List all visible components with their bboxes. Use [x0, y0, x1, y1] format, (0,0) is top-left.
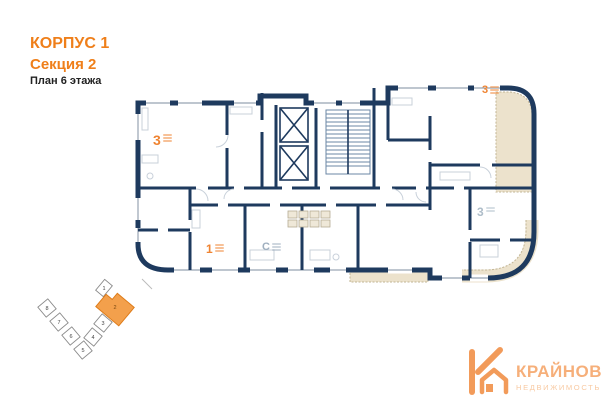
- building-minimap: 1 2 3 4 5 6 7 8: [25, 276, 153, 398]
- minimap-section-number: 1: [102, 286, 105, 292]
- area-figures: [486, 207, 495, 212]
- area-figures: [490, 86, 499, 94]
- apartment-type: 3: [482, 85, 488, 96]
- minimap-section-number: 4: [91, 335, 94, 341]
- logo-name: КРАЙНОВ: [516, 362, 602, 381]
- minimap-section-number: 8: [45, 306, 48, 312]
- area-figures: [272, 243, 281, 251]
- company-logo: КРАЙНОВ НЕДВИЖИМОСТЬ: [458, 344, 603, 400]
- minimap-section-number: 7: [57, 320, 60, 326]
- minimap-road-line: [142, 279, 152, 289]
- section-title: Секция 2: [30, 55, 109, 75]
- floor-plan: 3 3 1 С 3: [130, 80, 545, 290]
- minimap-section-number: 6: [69, 334, 72, 340]
- area-figures: [215, 244, 224, 252]
- plan-header: КОРПУС 1 Секция 2 План 6 этажа: [30, 34, 109, 89]
- staircase: [326, 110, 370, 174]
- logo-k-house-icon: [472, 350, 506, 392]
- apartment-label-3-bottomright[interactable]: 3: [477, 206, 495, 218]
- minimap-section-number: 2: [113, 305, 116, 311]
- outer-walls: [138, 88, 534, 278]
- furniture: [142, 98, 498, 260]
- apartment-label-3-topright[interactable]: 3: [482, 85, 499, 96]
- storage-boxes: [288, 211, 330, 227]
- minimap-section-number: 5: [81, 348, 84, 354]
- apartment-type: 3: [477, 206, 484, 218]
- building-title: КОРПУС 1: [30, 34, 109, 55]
- apartment-label-3-topleft[interactable]: 3: [153, 133, 172, 147]
- apartment-label-1[interactable]: 1: [206, 243, 224, 255]
- interior-walls: [138, 88, 534, 278]
- floor-plan-drawing: [130, 80, 545, 290]
- minimap-section-number: 3: [101, 321, 104, 327]
- elevator-shafts: [280, 108, 308, 180]
- apartment-type: 1: [206, 243, 213, 255]
- apartment-type: С: [262, 242, 270, 253]
- apartment-type: 3: [153, 133, 161, 147]
- logo-tagline: НЕДВИЖИМОСТЬ: [516, 383, 601, 392]
- floor-title: План 6 этажа: [30, 74, 109, 88]
- apartment-label-studio[interactable]: С: [262, 242, 281, 253]
- area-figures: [163, 134, 172, 142]
